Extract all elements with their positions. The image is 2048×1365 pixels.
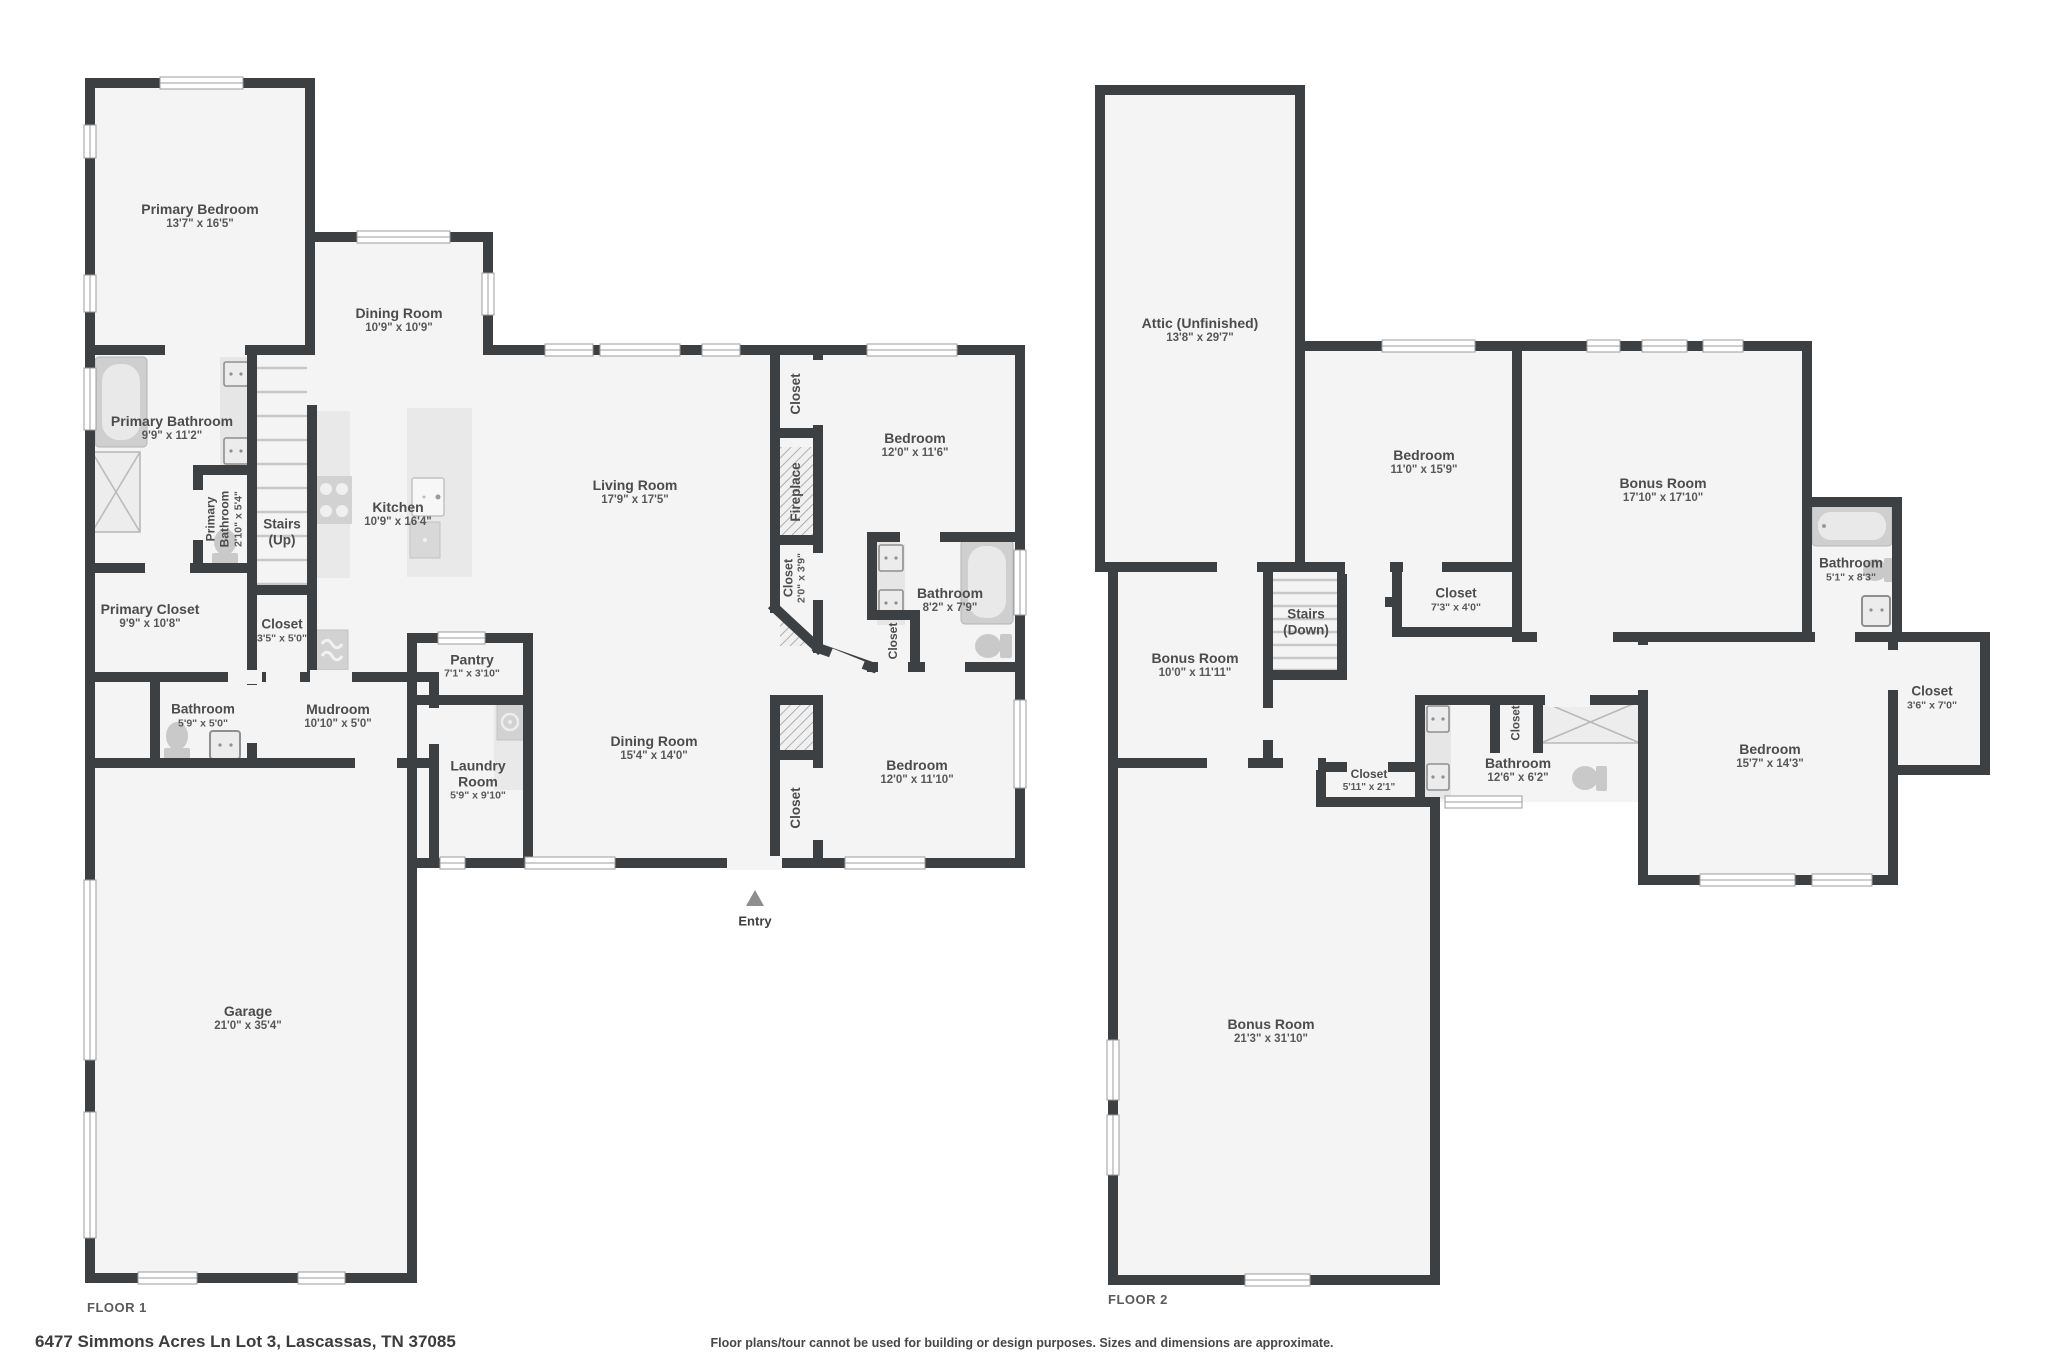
room-dims: 8'2" x 7'9" [917,601,983,615]
room-dims: 15'7" x 14'3" [1736,757,1804,771]
room-dims: 12'0" x 11'6" [882,446,949,460]
disclaimer-text: Floor plans/tour cannot be used for buil… [710,1336,1333,1350]
room-dims: (Down) [1283,622,1329,638]
room-dims: 10'0" x 11'11" [1151,666,1238,680]
room-name: Dining Room [355,305,442,321]
room-label-bathroom-main: Bathroom 12'6" x 6'2" [1485,755,1551,785]
room-dims: 10'9" x 10'9" [355,321,442,335]
room-dims: 3'6" x 7'0" [1907,699,1957,712]
stove-icon [315,476,352,524]
room-name: Bathroom [917,585,983,601]
room-name: Dining Room [610,733,697,749]
room-dims: 5'11" x 2'1" [1343,782,1396,795]
room-name: Kitchen [364,499,432,515]
room-dims: 9'9" x 11'2" [111,429,233,443]
room-label-attic: Attic (Unfinished) 13'8" x 29'7" [1142,315,1259,345]
entry-label: Entry [738,914,771,929]
room-label-primary-bathroom: Primary Bathroom 9'9" x 11'2" [111,413,233,443]
room-name: Bedroom [1391,447,1458,463]
room-name: Closet [1907,684,1957,700]
room-dims: 9'9" x 10'8" [101,617,200,631]
room-label-closet-bathroom: Closet [887,623,901,660]
room-label-primary-bathroom-wc: Primary Bathroom 2'10" x 5'4" [205,475,246,563]
room-dims: 2'10" x 5'4" [232,475,245,563]
room-name: Closet [1510,705,1523,740]
room-label-primary-closet: Primary Closet 9'9" x 10'8" [101,601,200,631]
room-label-bonus-room-upper: Bonus Room 17'10" x 17'10" [1619,475,1706,505]
room-name: Bonus Room [1619,475,1706,491]
bathtub-icon [1812,506,1892,546]
room-name: Closet [788,787,804,828]
floor-plan-drawing [0,0,2048,1365]
room-name: Living Room [593,477,678,493]
main-bath-vanity [1425,703,1451,799]
room-name: Closet [257,617,307,633]
floor2-tag: FLOOR 2 [1108,1292,1168,1307]
room-dims: 7'1" x 3'10" [444,667,500,680]
room-label-primary-bedroom: Primary Bedroom 13'7" x 16'5" [141,201,258,231]
room-name: Bedroom [1736,741,1804,757]
sink-icon [210,731,240,759]
room-label-bathroom-small: Bathroom 5'1" x 8'3" [1819,556,1883,585]
room-dims: 13'8" x 29'7" [1142,331,1259,345]
room-label-laundry-room: Laundry Room 5'9" x 9'10" [441,757,515,802]
room-label-garage: Garage 21'0" x 35'4" [214,1003,282,1033]
refrigerator-icon [316,630,348,670]
room-name: Closet [788,373,804,414]
room-name: Garage [214,1003,282,1019]
room-label-dining-room-main: Dining Room 15'4" x 14'0" [610,733,697,763]
room-label-bonus-room-mid: Bonus Room 10'0" x 11'11" [1151,650,1238,680]
room-name: Bathroom [171,702,235,718]
room-dims: 17'9" x 17'5" [593,493,678,507]
room-name: Stairs [263,516,301,532]
room-label-bedroom-right: Bedroom 15'7" x 14'3" [1736,741,1804,771]
room-dims: 3'5" x 5'0" [257,632,307,645]
entry-arrow-icon [746,890,764,906]
room-name: Closet [887,623,901,660]
room-label-stairs-down: Stairs (Down) [1283,606,1329,637]
room-dims: 21'0" x 35'4" [214,1019,282,1033]
room-name: Bedroom [880,757,953,773]
room-name: Closet [1431,586,1481,602]
room-name: Primary Closet [101,601,200,617]
room-label-closet-bathroom2: Closet [1510,705,1523,740]
room-dims: 7'3" x 4'0" [1431,601,1481,614]
room-label-closet-far-right: Closet 3'6" x 7'0" [1907,684,1957,713]
room-name: Laundry Room [441,757,515,789]
room-label-closet-hall-upper: Closet 2'0" x 3'9" [781,553,809,603]
room-label-bathroom-hall: Bathroom 8'2" x 7'9" [917,585,983,615]
floor2-room-fill [1100,90,1985,1280]
room-dims: 2'0" x 3'9" [796,553,809,603]
shower-icon [1541,701,1640,743]
room-name: Bonus Room [1227,1016,1314,1032]
room-dims: 17'10" x 17'10" [1619,491,1706,505]
room-label-stairs-up: Stairs (Up) [263,516,301,547]
room-name: Closet [1343,768,1396,782]
room-label-bathroom-mud: Bathroom 5'9" x 5'0" [171,702,235,731]
floor2-plan [1100,90,1985,1286]
toilet-icon [975,634,1012,658]
room-label-closet-bedroom-left: Closet 7'3" x 4'0" [1431,586,1481,615]
room-name: Mudroom [304,701,372,717]
room-name: Primary Bathroom [205,475,233,563]
room-dims: 10'9" x 16'4" [364,515,432,529]
sink-icon [1862,596,1890,626]
room-label-mudroom: Mudroom 10'10" x 5'0" [304,701,372,731]
room-dims: 5'9" x 5'0" [171,717,235,730]
room-label-closet-living: Closet [788,373,804,414]
room-dims: 15'4" x 14'0" [610,749,697,763]
floor-plan-page: Primary Bedroom 13'7" x 16'5" Dining Roo… [0,0,2048,1365]
room-dims: (Up) [263,532,301,548]
room-label-bedroom-upper: Bedroom 12'0" x 11'6" [882,430,949,460]
room-label-kitchen: Kitchen 10'9" x 16'4" [364,499,432,529]
room-name: Primary Bathroom [111,413,233,429]
room-name: Bathroom [1819,556,1883,572]
room-label-bedroom-lower: Bedroom 12'0" x 11'10" [880,757,953,787]
room-label-fireplace: Fireplace [788,462,804,521]
room-dims: 5'1" x 8'3" [1819,571,1883,584]
room-dims: 11'0" x 15'9" [1391,463,1458,477]
room-name: Bonus Room [1151,650,1238,666]
toilet-icon [1572,766,1607,791]
room-name: Entry [738,914,771,929]
room-label-bonus-room-large: Bonus Room 21'3" x 31'10" [1227,1016,1314,1046]
floor1-tag: FLOOR 1 [87,1300,147,1315]
room-label-bedroom-left: Bedroom 11'0" x 15'9" [1391,447,1458,477]
shower-icon [92,452,140,532]
room-name: Stairs [1283,606,1329,622]
room-name: Bathroom [1485,755,1551,771]
room-name: Fireplace [788,462,804,521]
room-dims: 12'6" x 6'2" [1485,771,1551,785]
room-label-closet-hall: Closet 5'11" x 2'1" [1343,768,1396,794]
room-label-closet-stairs: Closet 3'5" x 5'0" [257,617,307,646]
floor1-plan [84,77,1026,1284]
room-name: Attic (Unfinished) [1142,315,1259,331]
room-dims: 10'10" x 5'0" [304,717,372,731]
room-label-closet-bedroom-lower: Closet [788,787,804,828]
room-dims: 13'7" x 16'5" [141,217,258,231]
hatch-block [779,704,815,752]
room-dims: 12'0" x 11'10" [880,773,953,787]
room-label-pantry: Pantry 7'1" x 3'10" [444,651,500,680]
room-dims: 21'3" x 31'10" [1227,1032,1314,1046]
room-dims: 5'9" x 9'10" [441,790,515,803]
room-label-dining-room-upper: Dining Room 10'9" x 10'9" [355,305,442,335]
room-label-living-room: Living Room 17'9" x 17'5" [593,477,678,507]
room-name: Closet [781,553,795,603]
room-name: Bedroom [882,430,949,446]
room-name: Pantry [444,651,500,667]
property-address: 6477 Simmons Acres Ln Lot 3, Lascassas, … [35,1332,456,1352]
room-name: Primary Bedroom [141,201,258,217]
